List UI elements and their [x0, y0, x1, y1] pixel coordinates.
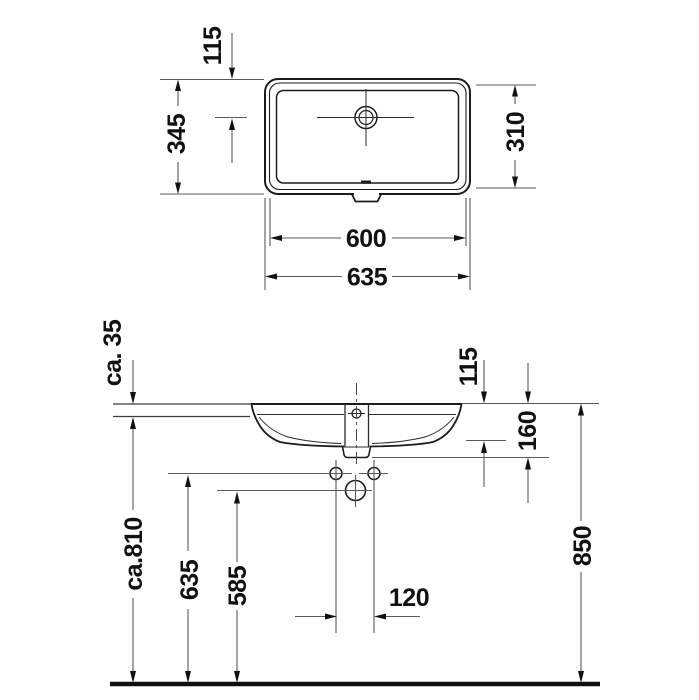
technical-drawing-page: 115 345 310 600 [0, 0, 699, 700]
dim-label-width-inner: 600 [346, 225, 386, 253]
dim-fixing-holes-height: 635 [176, 475, 204, 683]
dim-label-width-outer: 635 [347, 263, 388, 291]
dim-label-fixing-holes-spacing: 120 [389, 584, 429, 612]
dim-label-rim-to-outlet: 160 [514, 411, 542, 451]
basin-outer-outline [265, 79, 470, 194]
dim-depth-outer: 345 [160, 80, 264, 195]
dim-width-inner: 600 [270, 198, 466, 253]
dim-counter-underside-height: ca.810 [120, 429, 148, 683]
drain-top-view [317, 89, 414, 146]
dim-drain-offset: 115 [199, 26, 247, 163]
overflow-mark [361, 181, 371, 184]
dim-label-counter-thickness: ca. 35 [99, 319, 127, 386]
dim-counter-thickness: ca. 35 [99, 319, 136, 429]
front-view: ca. 35 ca.810 115 160 [99, 319, 600, 684]
dim-label-counter-underside-height: ca.810 [120, 517, 148, 590]
waste-pipe [217, 475, 372, 507]
dim-label-depth-outer: 345 [163, 113, 191, 154]
dim-rim-to-underside: 115 [455, 347, 487, 487]
dim-label-rim-to-underside: 115 [455, 347, 483, 386]
dim-rim-height: 850 [569, 404, 597, 684]
dim-drain-height: 585 [224, 492, 252, 684]
basin-middle-outline [270, 83, 467, 190]
washbasin-technical-drawing: 115 345 310 600 [0, 0, 699, 700]
top-view: 115 345 310 600 [160, 26, 536, 291]
dim-depth-inner: 310 [476, 85, 536, 188]
dim-fixing-holes-spacing: 120 [295, 584, 429, 620]
dim-label-drain-offset: 115 [199, 26, 227, 65]
dim-label-rim-height: 850 [569, 526, 597, 566]
basin-inner-rim [277, 91, 459, 184]
dim-label-depth-inner: 310 [502, 112, 530, 152]
dim-label-fixing-holes-height: 635 [176, 559, 204, 600]
dim-label-drain-height: 585 [224, 565, 252, 606]
dim-rim-to-outlet: 160 [514, 363, 542, 503]
